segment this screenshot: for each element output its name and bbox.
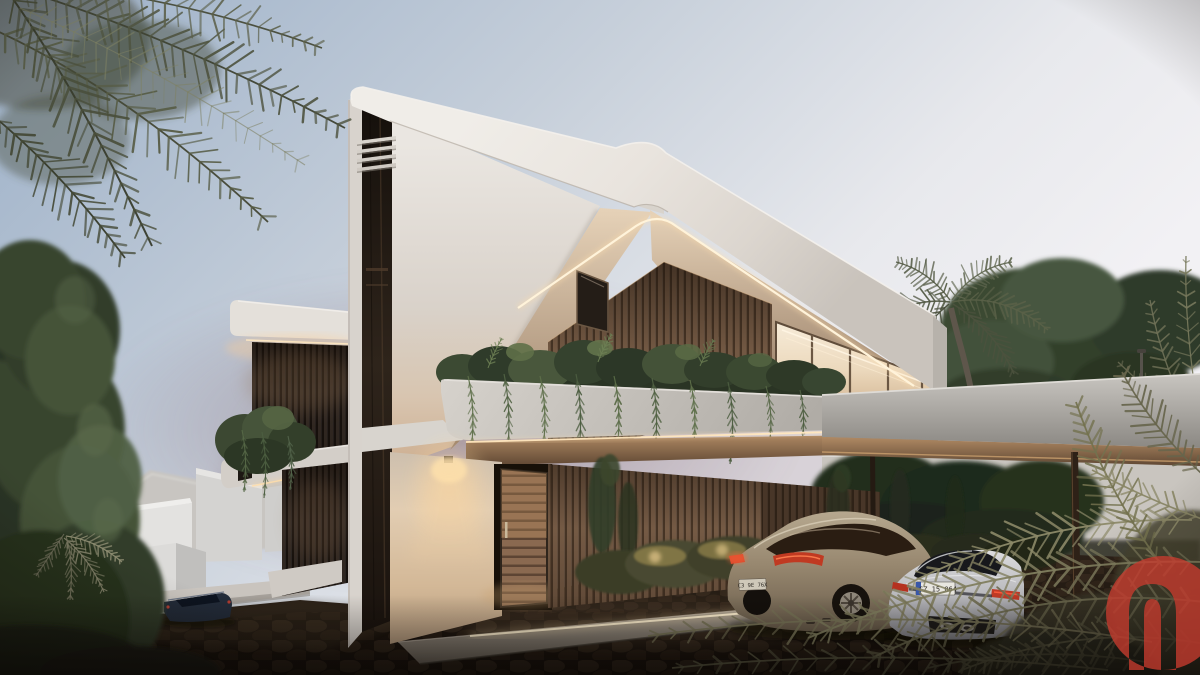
bottom-shade [0,595,1200,675]
architectural-rendering: C3 9E 76X CZ 15 064 [0,0,1200,675]
vignette [0,0,1200,675]
